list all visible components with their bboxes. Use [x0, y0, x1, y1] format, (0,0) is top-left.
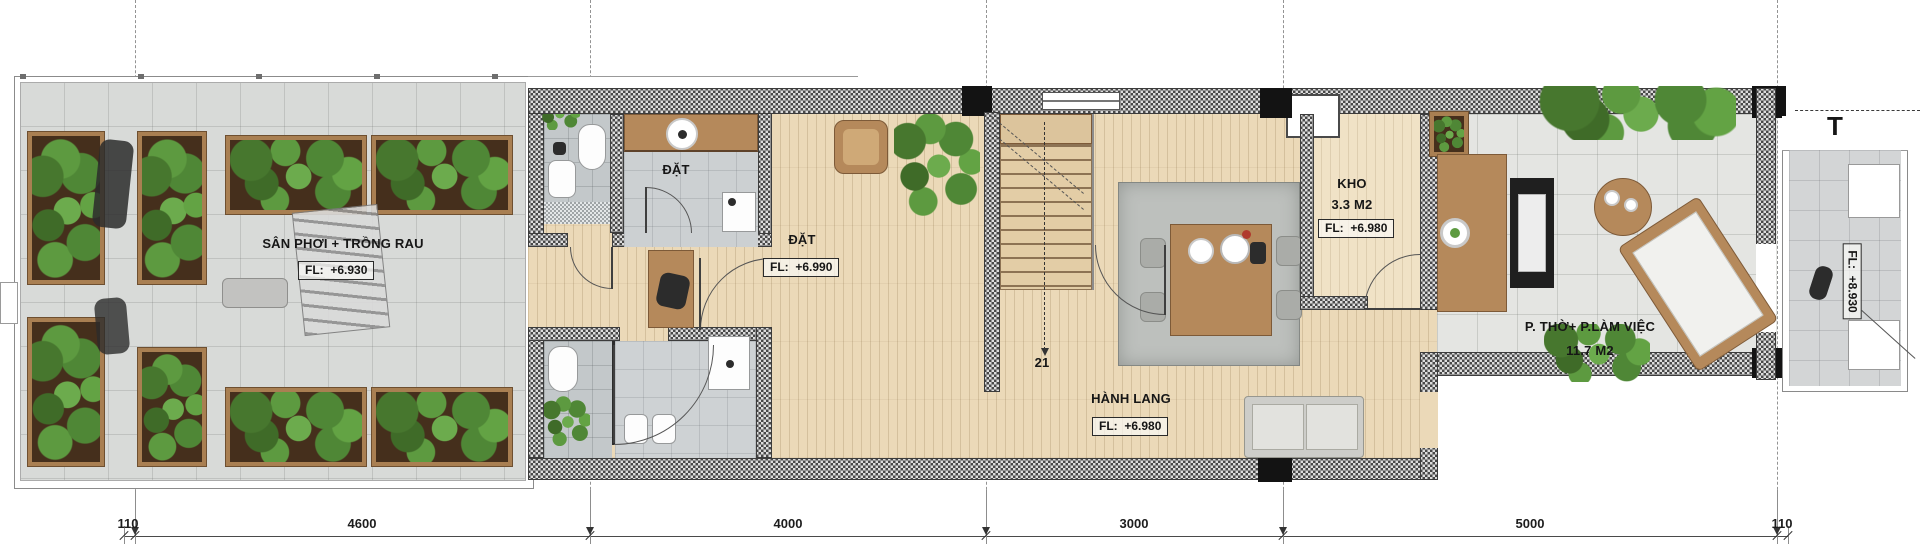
plant-icon: [230, 140, 362, 210]
dim-arrow: [586, 527, 594, 535]
bottle-icon: [1250, 242, 1266, 264]
planter-box: [226, 388, 366, 466]
stair-wall: [984, 112, 1000, 392]
dimension-label: 5000: [1480, 516, 1580, 531]
plant-icon: [376, 140, 508, 210]
floor-plan-canvas: SÂN PHƠI + TRỒNG RAU FL: +6.930 ĐẶT: [0, 0, 1920, 544]
armchair-cushion: [843, 129, 879, 165]
bathroom-bottom-wall-a: [528, 233, 568, 247]
corridor-fl-badge: FL: +6.980: [1092, 417, 1168, 436]
stair-direction-line: [1044, 122, 1045, 350]
planter-box: [1430, 112, 1468, 156]
section-line: [1795, 110, 1920, 111]
plant-icon: [32, 322, 100, 462]
sink-icon: [548, 160, 576, 198]
plant-row-icon: [1538, 86, 1736, 140]
hall-fl-badge: FL: +6.990: [763, 258, 839, 277]
balcony-notch: [1848, 164, 1900, 218]
drain-icon: [678, 130, 687, 139]
balcony-fl-badge: FL: +8.930: [1843, 243, 1862, 319]
stool-icon: [1276, 290, 1302, 320]
dimension-line: [124, 536, 1788, 537]
storage-area-label: 3.3 M2: [1322, 198, 1382, 213]
door-leaf: [1164, 245, 1166, 315]
corridor-label: HÀNH LANG: [1081, 392, 1181, 407]
planter-box: [138, 348, 206, 466]
door-leaf: [613, 345, 615, 443]
planter-box: [226, 136, 366, 214]
grid-line-5: [1777, 0, 1778, 540]
round-table-icon: [1594, 178, 1652, 236]
dimension-label: 110: [108, 516, 148, 531]
plant-icon: [32, 136, 100, 280]
plant-icon: [142, 352, 202, 462]
plate-icon: [1604, 190, 1620, 206]
plant-icon: [230, 392, 362, 462]
potted-plant-icon: [894, 112, 980, 216]
storage-left-wall: [1300, 114, 1314, 310]
door-leaf: [611, 247, 613, 289]
balcony-notch: [1848, 320, 1900, 370]
plant-icon: [1434, 116, 1464, 152]
plant-icon: [544, 396, 590, 446]
bathroom2-top-wall-a: [528, 327, 620, 341]
stair-rail: [1092, 114, 1094, 290]
plant-icon: [142, 136, 202, 280]
lounge-chair-icon: [222, 278, 288, 308]
hall-label: ĐẶT: [772, 233, 832, 248]
planter-box: [372, 388, 512, 466]
door-leaf: [1364, 308, 1420, 310]
stair-landing: [1000, 114, 1092, 144]
bathroom-divider-wall: [610, 114, 624, 233]
faucet-icon: [553, 142, 566, 155]
washer-knob-icon: [728, 198, 736, 206]
plate-icon: [1624, 198, 1638, 212]
worship-room-label: P. THỜ+ P.LÀM VIỆC: [1500, 320, 1680, 335]
column: [1260, 88, 1292, 118]
sofa-cushion: [1252, 404, 1304, 450]
storage-fl-badge: FL: +6.980: [1318, 219, 1394, 238]
terrace-label: SÂN PHƠI + TRỒNG RAU: [218, 237, 468, 252]
drain-icon: [726, 360, 734, 368]
dim-arrow: [1279, 527, 1287, 535]
bathroom2-left-wall: [528, 327, 544, 458]
side-ledge: [0, 282, 18, 324]
door-leaf: [645, 187, 647, 233]
dimension-label: 110: [1762, 516, 1802, 531]
dimension-label: 4000: [738, 516, 838, 531]
stool-icon: [1276, 236, 1302, 266]
dim-arrow: [982, 527, 990, 535]
sofa-cushion: [1306, 404, 1358, 450]
bottom-wall: [528, 458, 1438, 480]
dimension-label: 3000: [1084, 516, 1184, 531]
door-leaf: [699, 258, 701, 330]
planter-box: [138, 132, 206, 284]
shower-floor: [544, 202, 612, 224]
stair-step-count: 21: [1028, 356, 1056, 371]
kettle-icon: [1242, 230, 1251, 239]
terrace-fl-badge: FL: +6.930: [298, 261, 374, 280]
altar-top: [1518, 194, 1546, 272]
planter-box: [28, 318, 104, 466]
right-wall: [1756, 88, 1776, 380]
connector-door-gap: [1420, 392, 1438, 448]
planter-box: [372, 136, 512, 214]
terrace-railing: [20, 74, 528, 79]
storage-label: KHO: [1322, 177, 1382, 192]
section-marker-t: T: [1820, 112, 1850, 142]
plant-icon: [376, 392, 508, 462]
wet-room-right-wall: [756, 327, 772, 458]
toilet-icon: [548, 346, 578, 392]
storage-bottom-wall: [1300, 296, 1368, 310]
worship-room-area-label: 11.7 M2: [1550, 344, 1630, 359]
desk-chair-seat: [1450, 228, 1460, 238]
stair-steps: [1000, 144, 1092, 290]
washer-icon: [722, 192, 756, 232]
plate-icon: [1188, 238, 1214, 264]
dimension-label: 4600: [312, 516, 412, 531]
bicycle-icon: [94, 297, 131, 356]
laundry-nook-label: ĐẶT: [646, 163, 706, 178]
toilet-icon: [578, 124, 606, 170]
column: [1258, 454, 1292, 482]
window-opening: [1042, 92, 1120, 110]
